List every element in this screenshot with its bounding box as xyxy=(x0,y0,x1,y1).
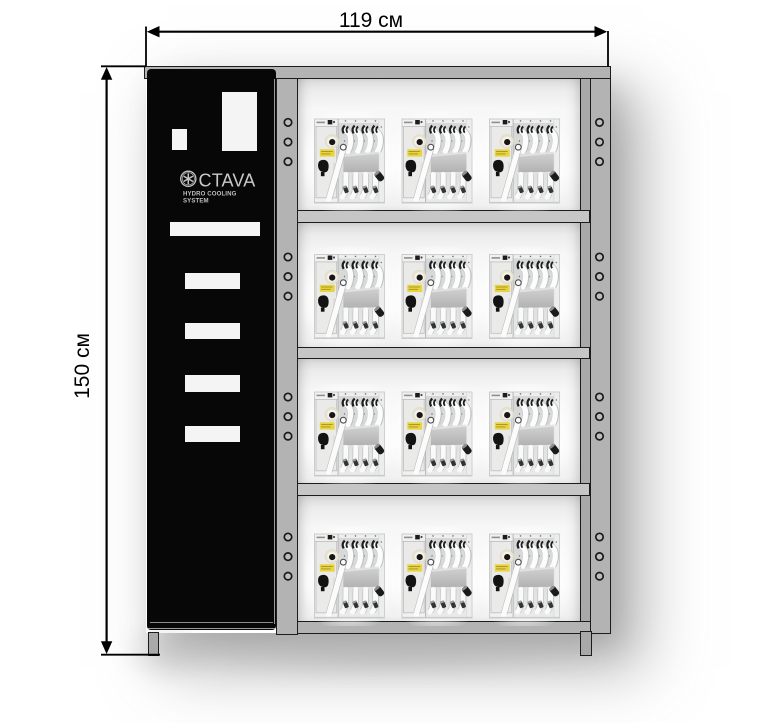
svg-text:119 см: 119 см xyxy=(339,9,403,32)
svg-text:150 см: 150 см xyxy=(71,333,94,399)
